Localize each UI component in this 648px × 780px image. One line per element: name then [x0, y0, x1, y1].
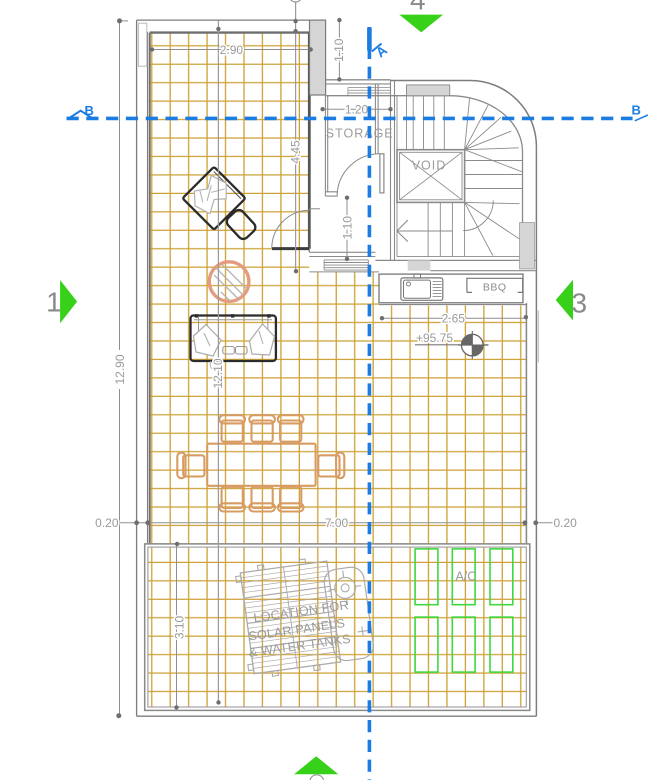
svg-text:4.45: 4.45: [289, 140, 303, 164]
svg-text:7.00: 7.00: [325, 516, 349, 530]
svg-text:B: B: [85, 103, 94, 118]
svg-text:1.10: 1.10: [340, 216, 354, 240]
svg-text:0.20: 0.20: [95, 516, 119, 530]
svg-text:2.90: 2.90: [220, 43, 244, 57]
svg-text:1.10: 1.10: [332, 38, 346, 62]
svg-text:2.65: 2.65: [442, 311, 466, 325]
svg-text:12.90: 12.90: [113, 354, 127, 384]
svg-text:BBQ: BBQ: [483, 282, 507, 294]
svg-text:VOID: VOID: [412, 159, 447, 173]
svg-text:3.10: 3.10: [173, 615, 187, 639]
svg-text:0.20: 0.20: [554, 516, 578, 530]
svg-text:STORAGE: STORAGE: [326, 127, 394, 141]
svg-text:12.10: 12.10: [211, 358, 225, 388]
svg-text:3: 3: [572, 288, 588, 319]
svg-text:+95.75: +95.75: [416, 331, 453, 345]
svg-text:1: 1: [46, 287, 62, 318]
svg-text:B: B: [632, 103, 641, 118]
svg-text:1.20: 1.20: [345, 103, 369, 117]
svg-text:4: 4: [410, 0, 426, 15]
svg-text:A/C: A/C: [455, 570, 476, 584]
